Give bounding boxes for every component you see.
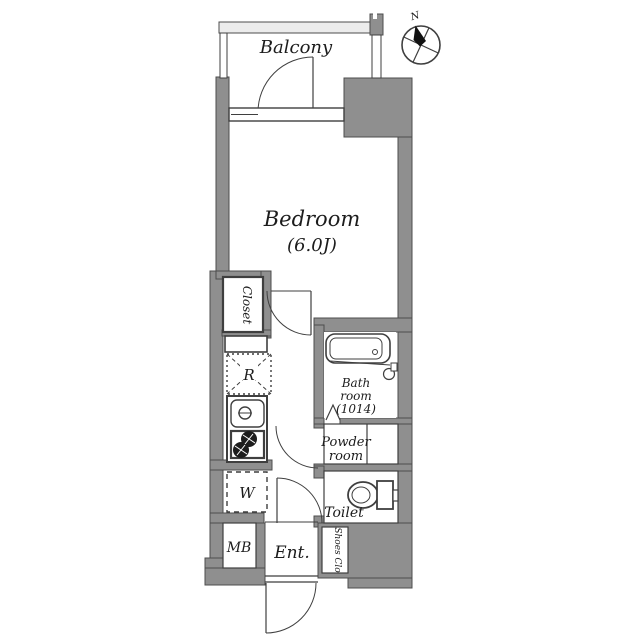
wall-bath-top — [314, 318, 412, 332]
powder-room: Powder room — [276, 424, 398, 468]
wall-washer-bottom — [210, 513, 264, 523]
closet-label: Closet — [240, 286, 254, 325]
wall-right — [398, 137, 412, 588]
refrigerator-label: R — [242, 366, 254, 384]
balcony-rail-left — [220, 33, 227, 78]
bedroom-label: Bedroom — [263, 207, 361, 231]
bathroom-label-3: (1014) — [336, 402, 376, 416]
floor-plan-svg: Balcony Bedroom (6.0J) Closet R — [0, 0, 640, 640]
bathroom: Bath room (1014) — [324, 332, 397, 420]
bedroom-size: (6.0J) — [287, 235, 337, 256]
powder-door-arc — [276, 426, 318, 468]
wall-bottom-right-step — [348, 578, 412, 588]
entrance-door-arc — [266, 583, 316, 633]
bedroom-door-arc — [267, 291, 311, 335]
bathroom-label-1: Bath — [341, 376, 371, 390]
bedroom: Bedroom (6.0J) — [263, 207, 361, 335]
washer-label: W — [239, 484, 256, 502]
balcony-label: Balcony — [259, 37, 333, 58]
balcony-door-arc — [258, 57, 313, 112]
balcony-corner-notch — [373, 13, 377, 19]
wall-toilet-top — [314, 464, 412, 471]
closet: Closet — [223, 277, 267, 352]
wall-bottom-left — [205, 568, 265, 585]
bath-faucet — [391, 363, 397, 371]
wall-bath-bottom-left — [314, 418, 324, 424]
closet-cabinet — [225, 336, 267, 352]
balcony-railing-bar — [219, 22, 376, 33]
powder-label-2: room — [329, 449, 363, 464]
bathtub-inner — [330, 338, 382, 359]
toilet-tank — [377, 481, 393, 509]
meter-box-label: MB — [226, 540, 252, 556]
kitchen: R — [227, 354, 271, 462]
entrance-label: Ent. — [273, 543, 310, 563]
wall-bath-bottom — [340, 418, 412, 424]
shoes-closet-label: Shoes Clo — [332, 527, 342, 573]
toilet-label: Toilet — [324, 505, 364, 521]
bedroom-window — [229, 108, 344, 121]
toilet-room: Toilet — [277, 471, 398, 523]
wall-left-upper — [216, 77, 229, 285]
floor-plan-page: Balcony Bedroom (6.0J) Closet R — [0, 0, 640, 640]
balcony-rail-right — [372, 35, 381, 78]
compass-north-label: N — [408, 10, 422, 24]
washer-space: W — [227, 472, 267, 512]
bathroom-label-2: room — [340, 389, 372, 403]
toilet-handle — [393, 490, 398, 501]
powder-label-1: Powder — [320, 435, 371, 450]
wall-pillar — [344, 78, 412, 137]
wall-bath-left — [314, 325, 324, 428]
compass: N — [402, 10, 440, 64]
